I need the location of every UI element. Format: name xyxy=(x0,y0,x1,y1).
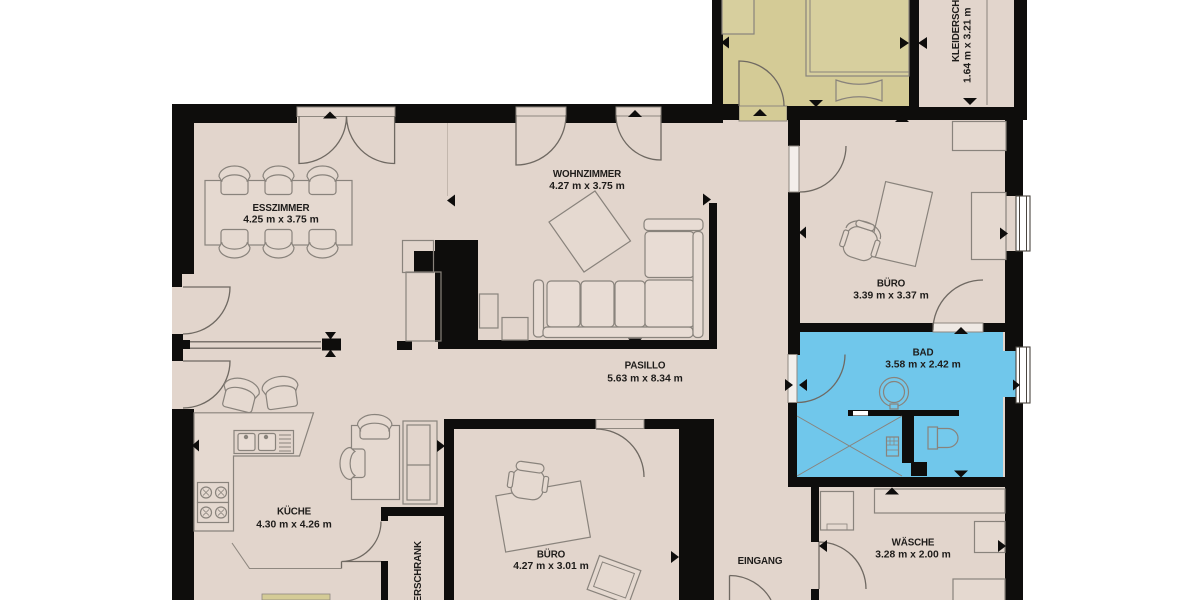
svg-text:3.58 m x 2.42 m: 3.58 m x 2.42 m xyxy=(885,360,961,371)
svg-text:1.64 m x 3.21 m: 1.64 m x 3.21 m xyxy=(963,7,974,83)
svg-text:4.27 m x 3.75 m: 4.27 m x 3.75 m xyxy=(549,181,625,192)
svg-text:3.28 m x 2.00 m: 3.28 m x 2.00 m xyxy=(875,550,951,561)
svg-text:EINGANG: EINGANG xyxy=(738,556,783,567)
svg-text:4.27 m x 3.01 m: 4.27 m x 3.01 m xyxy=(513,561,589,572)
svg-text:BÜRO: BÜRO xyxy=(877,279,906,290)
svg-text:PASILLO: PASILLO xyxy=(625,361,666,372)
svg-text:4.25 m x 3.75 m: 4.25 m x 3.75 m xyxy=(243,215,319,226)
svg-text:BÜRO: BÜRO xyxy=(537,550,566,561)
svg-text:3.39 m x 3.37 m: 3.39 m x 3.37 m xyxy=(853,291,929,302)
svg-text:ESSZIMMER: ESSZIMMER xyxy=(253,203,310,214)
svg-text:KLEIDERSCHRANK: KLEIDERSCHRANK xyxy=(413,541,424,600)
svg-text:WOHNZIMMER: WOHNZIMMER xyxy=(553,169,621,180)
svg-text:4.30 m x 4.26 m: 4.30 m x 4.26 m xyxy=(256,520,332,531)
svg-text:5.63 m x 8.34 m: 5.63 m x 8.34 m xyxy=(607,374,683,385)
svg-text:KÜCHE: KÜCHE xyxy=(277,507,312,518)
svg-text:BAD: BAD xyxy=(913,348,934,359)
svg-text:WÄSCHE: WÄSCHE xyxy=(892,538,935,549)
svg-text:KLEIDERSCHRANK: KLEIDERSCHRANK xyxy=(951,0,962,62)
